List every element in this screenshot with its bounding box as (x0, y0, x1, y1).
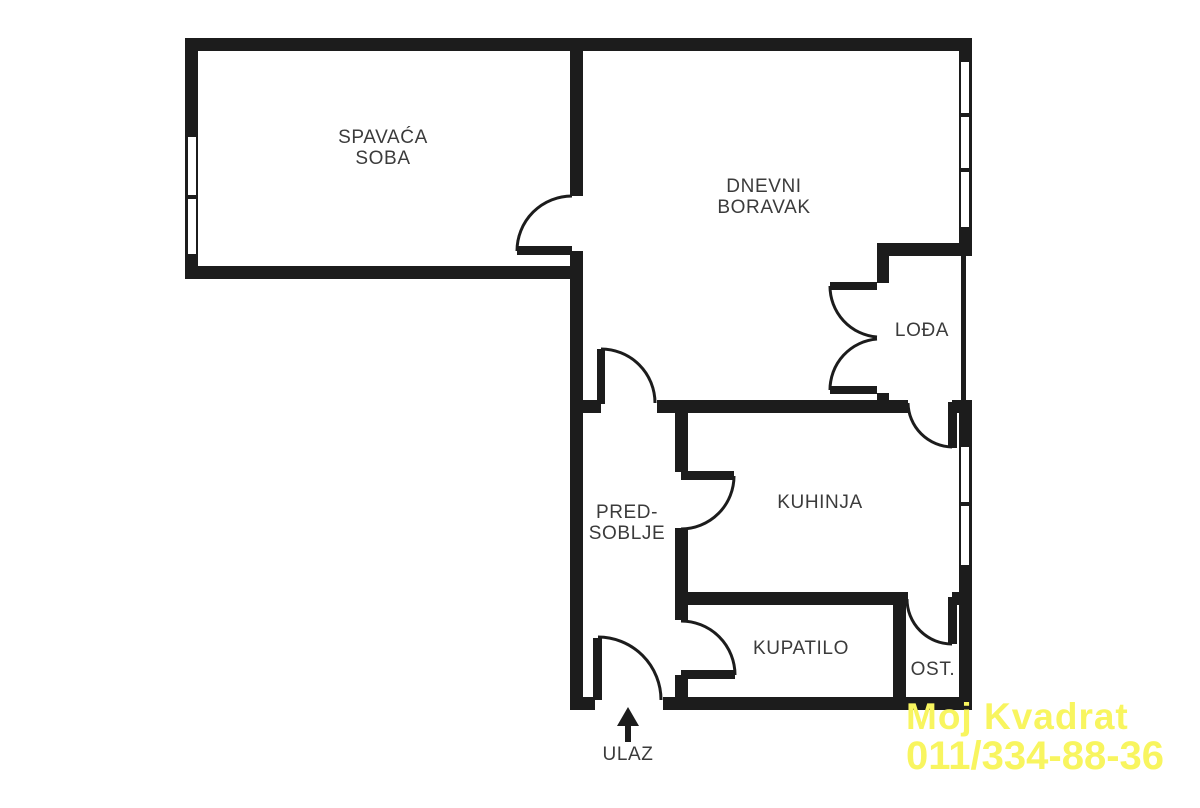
wall-kitchen-bottom-b (952, 592, 972, 605)
room-label-line: SOBA (355, 148, 410, 169)
room-label-line: SPAVAĆA (338, 127, 428, 148)
room-label-line: DNEVNI (726, 176, 801, 197)
wall-living-bottom-stub (583, 400, 601, 413)
bedroom-window (185, 137, 198, 254)
living-hallway-door (597, 349, 655, 404)
room-label-line: LOĐA (895, 320, 949, 341)
room-label-hallway: PRED-SOBLJE (589, 502, 665, 544)
room-label-line: BORAVAK (717, 197, 810, 218)
loggia-kitchen-door (908, 402, 957, 448)
wall-bathroom-storage-divider (893, 592, 906, 710)
wall-hall-divider-c (675, 675, 688, 710)
wall-kitchen-bottom-a (688, 592, 908, 605)
loggia-outer-edge (961, 256, 966, 400)
entrance-door (593, 637, 661, 700)
wall-living-bottom-right (952, 400, 972, 413)
entrance-arrow-icon (617, 707, 639, 742)
room-label-bedroom: SPAVAĆASOBA (338, 127, 428, 169)
window-mullion (961, 502, 969, 506)
room-label-line: PRED- (596, 502, 658, 523)
room-label-living-room: DNEVNIBORAVAK (717, 176, 810, 218)
wall-spine-lower (570, 251, 583, 710)
wall-living-bottom-main (657, 400, 908, 413)
watermark-phone: 011/334-88-36 (906, 735, 1164, 777)
entrance-label: ULAZ (603, 744, 654, 765)
window-mullion (961, 113, 969, 117)
floor-plan: SPAVAĆASOBA DNEVNIBORAVAK LOĐA PRED-SOBL… (0, 0, 1200, 808)
wall-right-outer-a (959, 38, 972, 62)
room-label-loggia: LOĐA (895, 320, 949, 341)
kitchen-window (959, 447, 972, 565)
bathroom-door (681, 621, 735, 679)
wall-bedroom-left-upper (185, 38, 198, 137)
room-label-kitchen: KUHINJA (777, 492, 863, 513)
window-mullion (188, 195, 196, 199)
wall-loggia-left-lower (877, 393, 889, 413)
wall-loggia-left-upper (877, 243, 889, 283)
wall-spine-upper (570, 38, 583, 196)
wall-hall-divider-a (675, 413, 688, 472)
room-label-bathroom: KUPATILO (753, 638, 849, 659)
hallway-kitchen-door (681, 471, 734, 529)
living-room-window (959, 62, 972, 227)
wall-bedroom-bottom (185, 266, 580, 279)
wall-loggia-top (877, 243, 972, 256)
room-label-storage: OST. (911, 659, 956, 680)
entrance-label-text: ULAZ (603, 744, 654, 765)
watermark: Moj Kvadrat 011/334-88-36 (906, 698, 1164, 777)
room-label-line: OST. (911, 659, 956, 680)
room-label-line: KUPATILO (753, 638, 849, 659)
window-mullion (961, 168, 969, 172)
loggia-double-door-lower (830, 339, 877, 394)
wall-right-outer-d (959, 565, 972, 710)
bedroom-door (517, 196, 572, 255)
room-label-line: SOBLJE (589, 523, 665, 544)
storage-door (907, 597, 957, 644)
wall-hall-divider-b (675, 528, 688, 620)
room-label-line: KUHINJA (777, 492, 863, 513)
loggia-double-door-upper (830, 282, 877, 337)
watermark-brand: Moj Kvadrat (906, 698, 1164, 735)
